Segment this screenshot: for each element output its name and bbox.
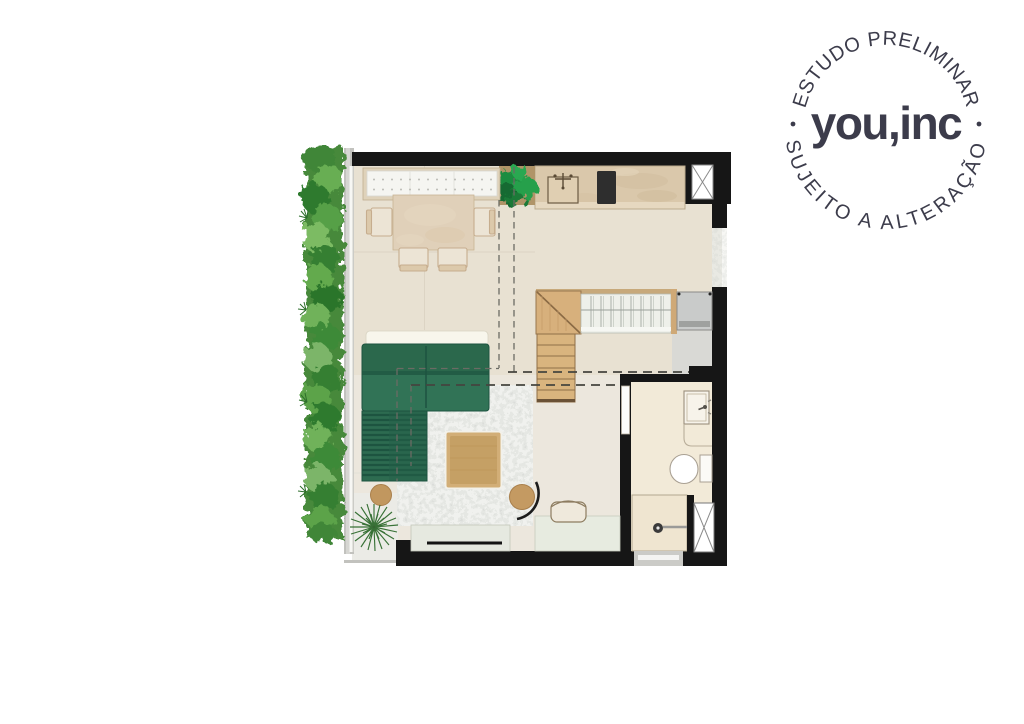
svg-text:you,inc: you,inc (811, 97, 962, 149)
